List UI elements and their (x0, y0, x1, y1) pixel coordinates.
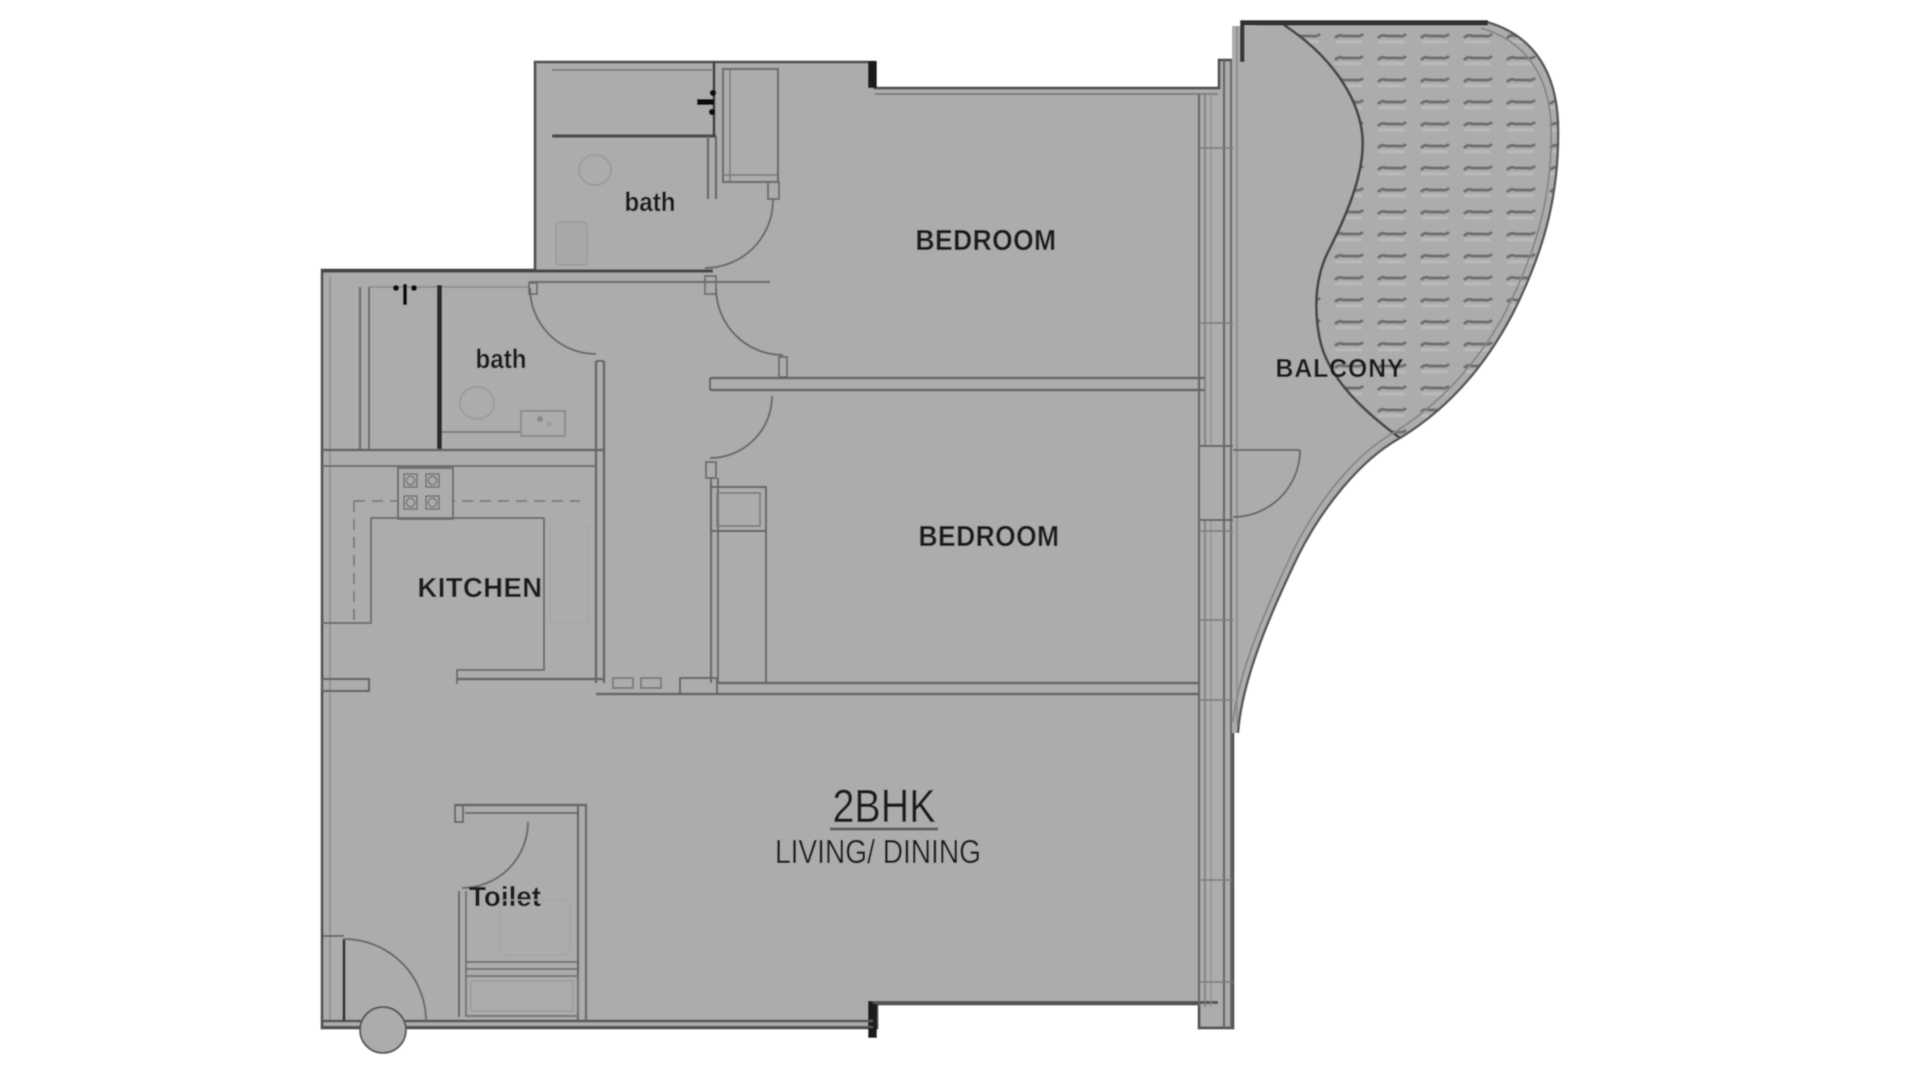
svg-text:LIVING/ DINING: LIVING/ DINING (775, 833, 981, 870)
svg-text:bath: bath (625, 187, 676, 217)
svg-text:Toilet: Toilet (469, 881, 541, 912)
svg-text:BALCONY: BALCONY (1276, 353, 1405, 383)
svg-text:2BHK: 2BHK (833, 780, 936, 832)
svg-text:BEDROOM: BEDROOM (919, 521, 1060, 553)
svg-text:bath: bath (476, 344, 527, 374)
svg-text:BEDROOM: BEDROOM (916, 225, 1057, 257)
svg-text:KITCHEN: KITCHEN (418, 572, 543, 603)
